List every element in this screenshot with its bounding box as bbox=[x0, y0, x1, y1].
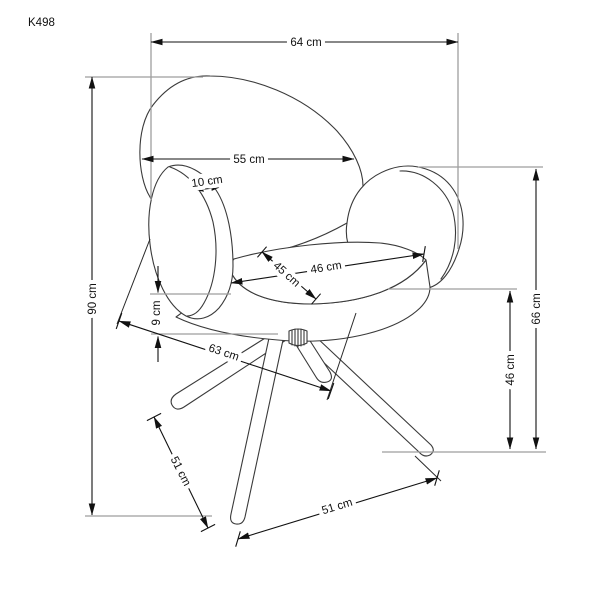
dim-label-overall-width: 64 cm bbox=[290, 37, 321, 49]
dim-label-backrest-width: 55 cm bbox=[233, 154, 264, 166]
dim-label-seat-height: 46 cm bbox=[505, 354, 517, 385]
dim-label-overall-height: 90 cm bbox=[87, 283, 99, 314]
dim-label-seat-edge-thickness: 9 cm bbox=[151, 301, 163, 326]
chair-dimension-diagram: K498 bbox=[0, 0, 600, 600]
swivel-hub bbox=[289, 329, 307, 347]
dim-label-armrest-height: 66 cm bbox=[531, 293, 543, 324]
product-code: K498 bbox=[28, 17, 55, 29]
